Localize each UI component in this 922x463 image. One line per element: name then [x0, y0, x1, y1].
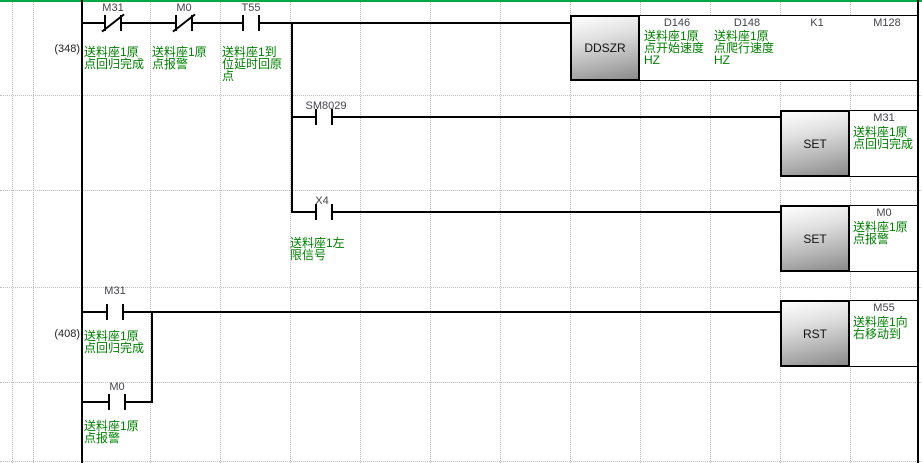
device-comment: 送料座1到 位延时回原 点 [222, 46, 282, 82]
device-comment: 送料座1原 点回归完成 [84, 330, 144, 354]
grid-line-vertical [33, 0, 34, 463]
instruction-box-rst[interactable]: RST [780, 300, 850, 367]
operand-label-k1: K1 [810, 17, 823, 29]
operand-label-m128: M128 [873, 17, 901, 29]
ladder-block-top-border [0, 0, 922, 2]
device-comment: 送料座1原 点回归完成 [853, 126, 913, 150]
operand-label-m31: M31 [873, 112, 894, 124]
device-comment: 送料座1左 限信号 [290, 237, 345, 261]
device-comment: 送料座1原 点报警 [853, 221, 908, 245]
device-comment: 送料座1原 点报警 [152, 46, 207, 70]
contact-label-m0: M0 [109, 381, 124, 393]
device-comment: 送料座1原 点爬行速度 HZ [714, 30, 774, 66]
instruction-box-set[interactable]: SET [780, 110, 850, 177]
no-contact-x4[interactable] [315, 204, 333, 220]
operand-label-m0: M0 [876, 207, 891, 219]
contact-label-m31: M31 [102, 2, 123, 14]
contact-bar [108, 394, 110, 410]
grid-line-vertical [500, 0, 501, 463]
no-contact-sm8029[interactable] [315, 109, 333, 125]
nc-contact-m31[interactable] [104, 15, 122, 31]
contact-bar [315, 109, 317, 125]
grid-line-horizontal [0, 382, 922, 383]
branch-vertical-wire [291, 22, 293, 213]
device-comment: 送料座1原 点开始速度 HZ [644, 30, 704, 66]
operand-label-d148: D148 [734, 17, 760, 29]
grid-line-vertical [360, 0, 361, 463]
instruction-mnemonic: RST [803, 327, 827, 341]
device-comment: 送料座1原 点报警 [84, 420, 139, 444]
contact-bar [258, 15, 260, 31]
contact-label-t55: T55 [242, 2, 261, 14]
instruction-mnemonic: SET [803, 232, 826, 246]
device-comment: 送料座1向 右移动到 [853, 316, 908, 340]
contact-bar [331, 109, 333, 125]
rung-348-wire [82, 22, 570, 24]
instruction-box-set[interactable]: SET [780, 205, 850, 272]
grid-line-horizontal [0, 461, 922, 462]
contact-label-m31: M31 [104, 285, 125, 297]
instruction-box-ddszr[interactable]: DDSZR [570, 15, 640, 81]
grid-line-vertical [430, 0, 431, 463]
instruction-mnemonic: DDSZR [584, 41, 625, 55]
contact-bar [124, 394, 126, 410]
grid-line-vertical [12, 0, 13, 463]
device-comment: 送料座1原 点回归完成 [84, 46, 144, 70]
contact-label-m0: M0 [176, 2, 191, 14]
operand-label-d146: D146 [664, 17, 690, 29]
ladder-editor-canvas: (348) (408) M31 送料座1原 点回归完成 M0 送料座1原 点报警… [0, 0, 922, 463]
left-power-rail [81, 0, 83, 463]
branch-sm8029-wire [292, 116, 780, 118]
contact-bar [106, 304, 108, 320]
contact-bar [242, 15, 244, 31]
rung-408-wire [82, 311, 780, 313]
operand-label-m55: M55 [873, 302, 894, 314]
grid-line-vertical [220, 0, 221, 463]
step-number-348: (348) [30, 43, 80, 55]
instruction-mnemonic: SET [803, 137, 826, 151]
contact-bar [331, 204, 333, 220]
grid-line-horizontal [0, 287, 922, 288]
nc-contact-m0[interactable] [175, 15, 193, 31]
parallel-vertical-wire [151, 311, 153, 403]
contact-bar [122, 304, 124, 320]
grid-line-horizontal [0, 95, 922, 96]
no-contact-t55[interactable] [242, 15, 260, 31]
branch-x4-wire [292, 211, 780, 213]
no-contact-m0[interactable] [108, 394, 126, 410]
no-contact-m31[interactable] [106, 304, 124, 320]
step-number-408: (408) [30, 328, 80, 340]
contact-bar [315, 204, 317, 220]
grid-line-horizontal [0, 190, 922, 191]
